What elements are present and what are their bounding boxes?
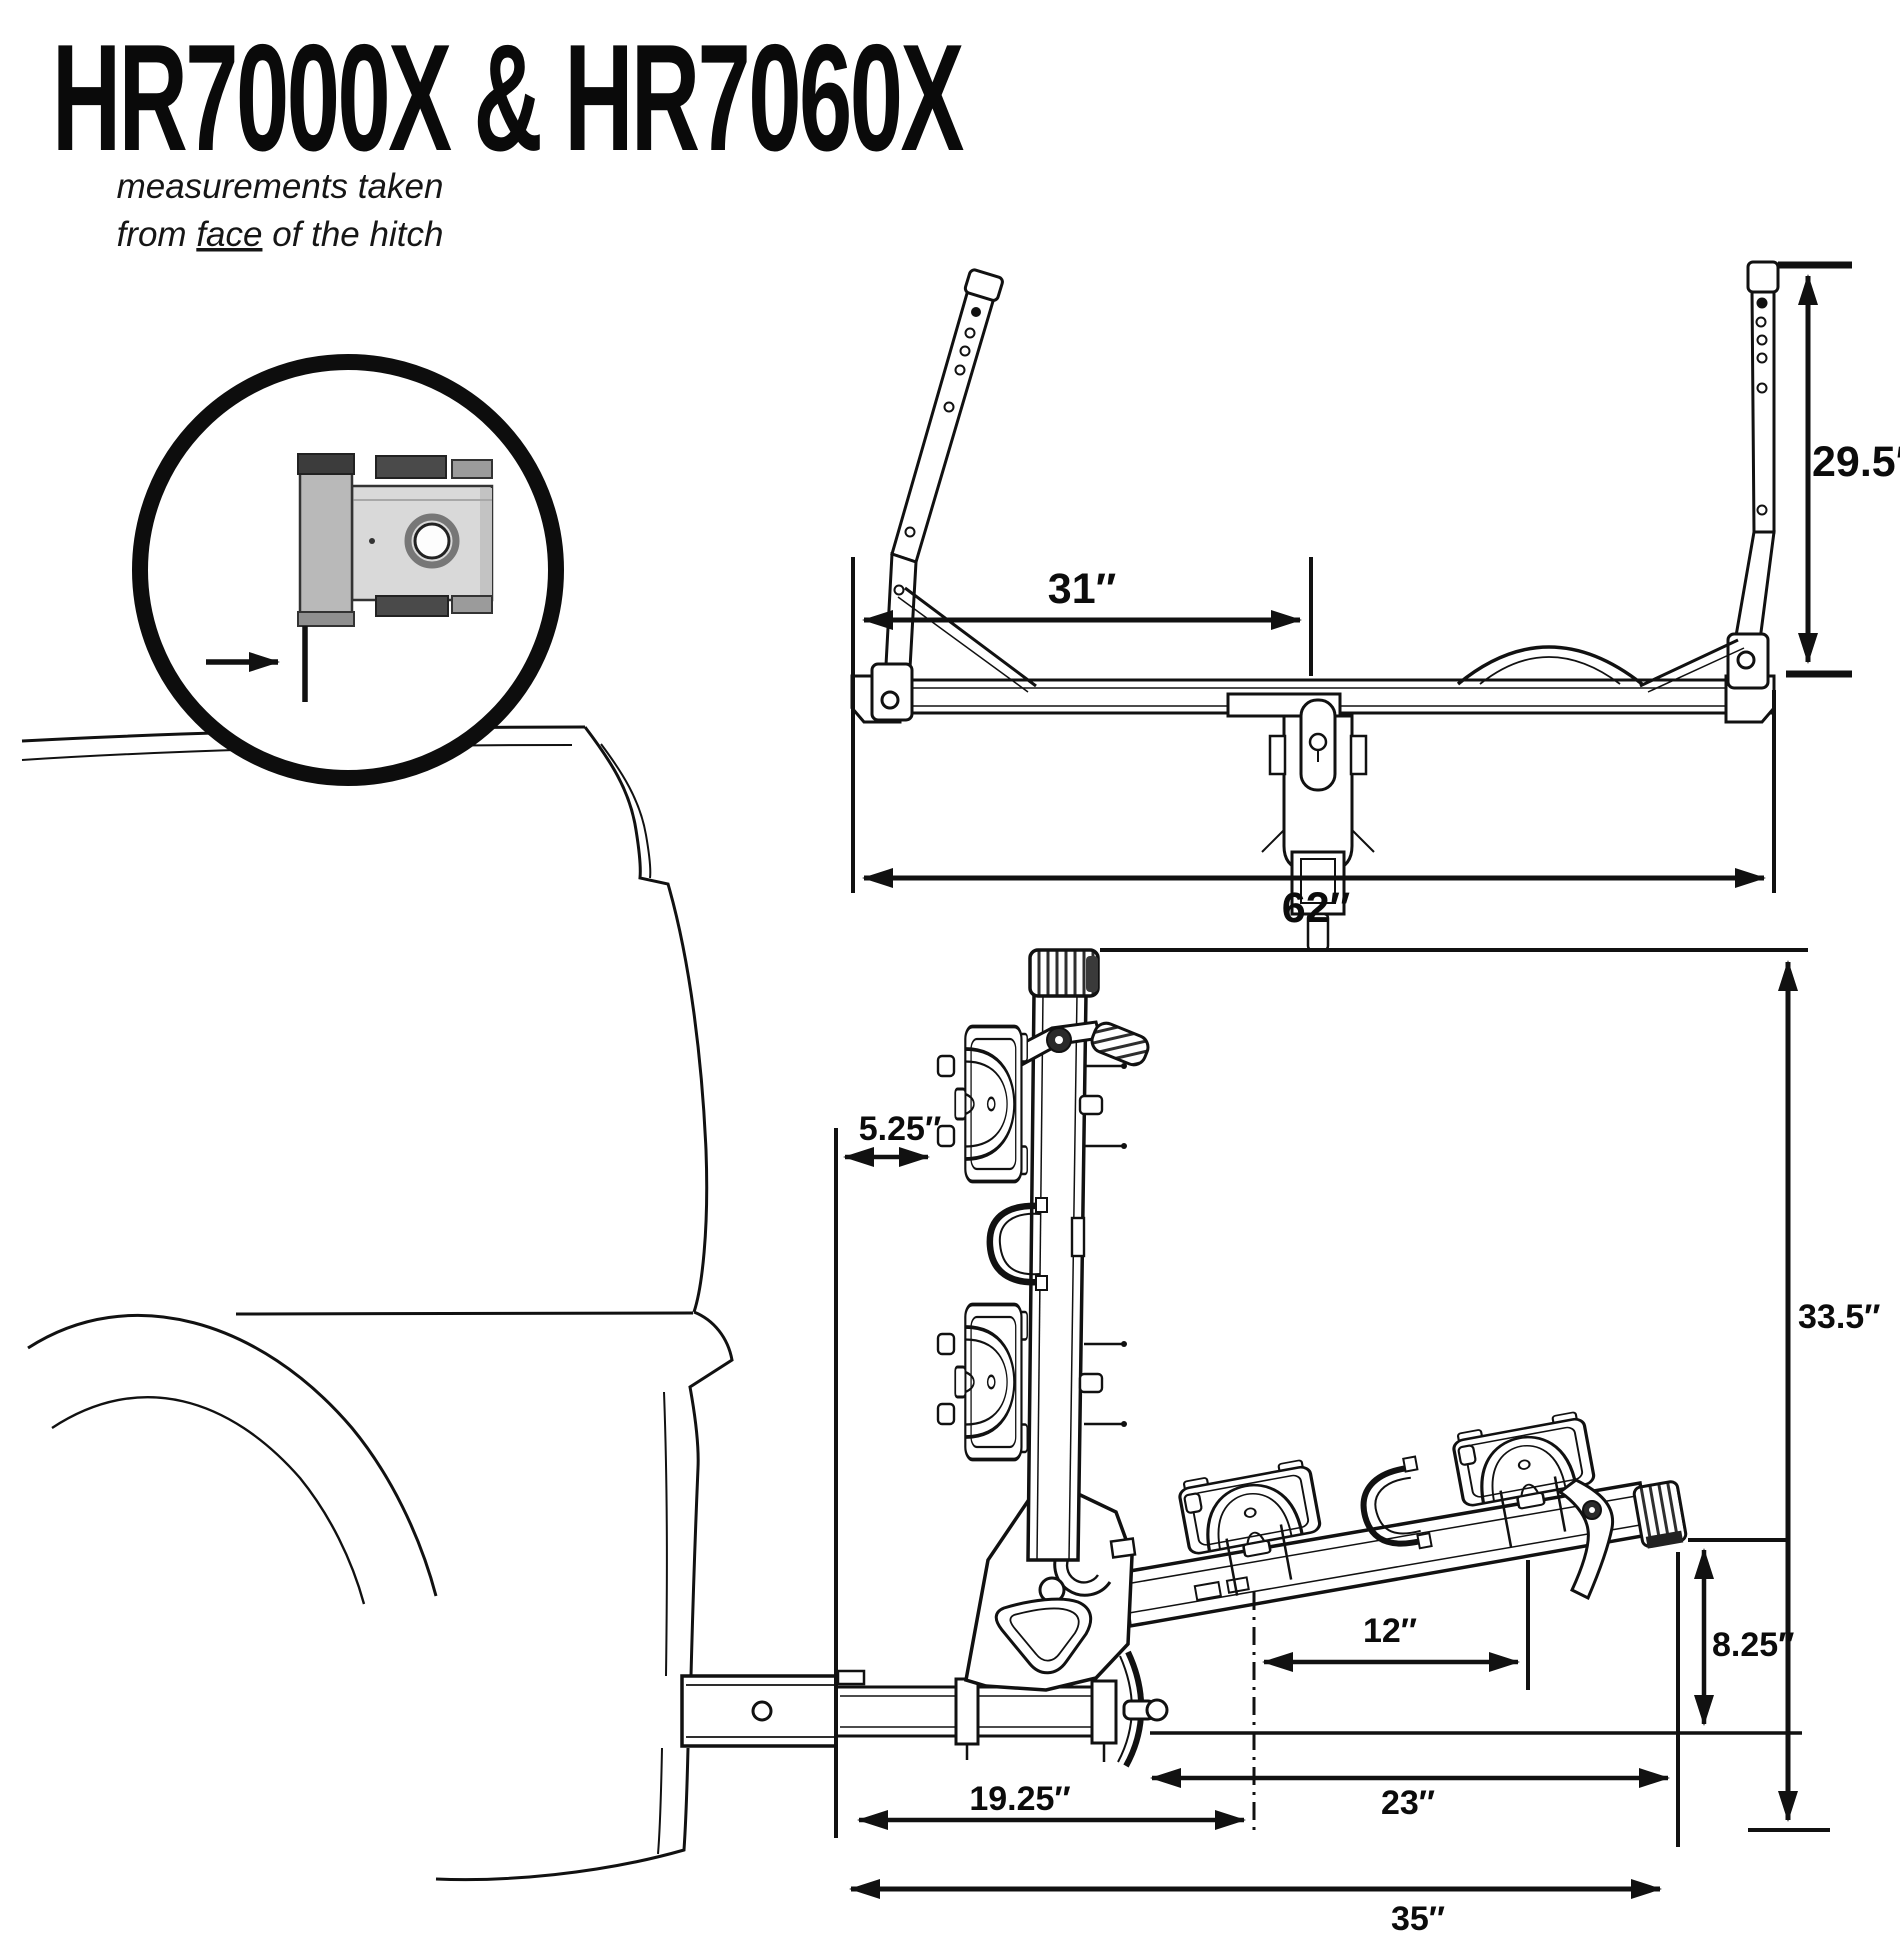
dim-label-35: 35″ <box>1391 1900 1445 1938</box>
side-view-diagram: 5.25″ 33.5″ 12″ 8.25″ 23″ 19.25″ 35″ <box>682 950 1880 1938</box>
note-line2: from face of the hitch <box>117 215 444 254</box>
header: HR7000X & HR7060X measurements taken fro… <box>52 12 964 254</box>
mast-tray-lower <box>955 1305 1027 1460</box>
tray-clamp-knob <box>1080 1374 1102 1392</box>
hitch-face-inset <box>140 362 556 778</box>
vehicle-outline <box>22 727 732 1880</box>
dim-label-29-5: 29.5″ <box>1812 438 1900 486</box>
page-title: HR7000X & HR7060X <box>52 12 964 182</box>
dim-label-33-5: 33.5″ <box>1798 1298 1880 1336</box>
dim-label-19-25: 19.25″ <box>969 1780 1070 1818</box>
note-line1: measurements taken <box>117 167 444 206</box>
tray-clamp-knob <box>1080 1096 1102 1114</box>
left-upright <box>872 269 1036 720</box>
hitch-pin-hole <box>753 1702 771 1720</box>
rack-dimension-diagram: HR7000X & HR7060X measurements taken fro… <box>0 0 1900 1942</box>
dim-label-62: 62″ <box>1282 884 1350 932</box>
arm-end-cap <box>1633 1481 1687 1550</box>
right-upright <box>1640 262 1778 692</box>
dim-label-12: 12″ <box>1363 1612 1417 1650</box>
dim-label-5-25: 5.25″ <box>859 1110 941 1148</box>
hitch-pin-hole <box>415 524 449 558</box>
dim-label-31: 31″ <box>1048 565 1116 613</box>
wheel-hoop-folded <box>1458 647 1642 684</box>
mast-tray-upper <box>955 1027 1027 1182</box>
front-view-diagram: 31″ 29.5″ 62″ <box>852 262 1900 950</box>
dim-label-23: 23″ <box>1381 1784 1435 1822</box>
dim-label-8-25: 8.25″ <box>1712 1626 1794 1664</box>
